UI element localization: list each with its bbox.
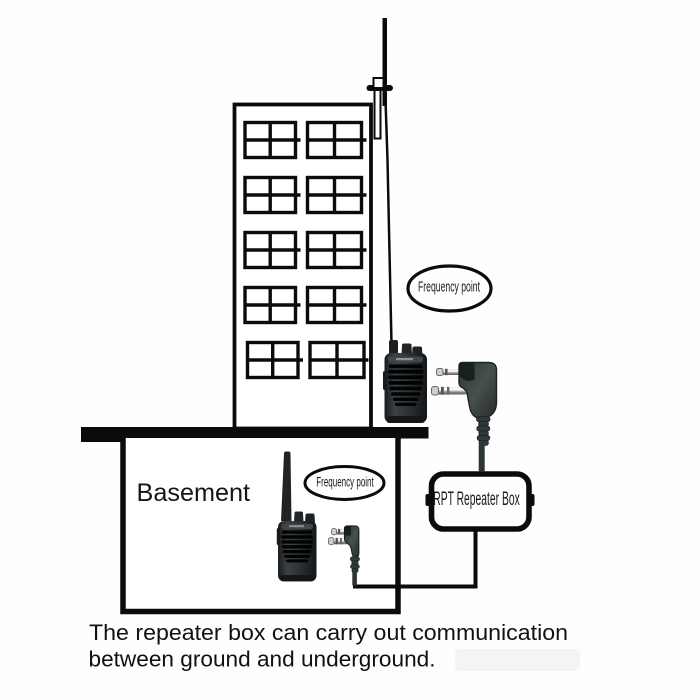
svg-text:RPT Repeater Box: RPT Repeater Box [433, 489, 520, 510]
svg-text:The repeater box can carry out: The repeater box can carry out communica… [89, 620, 568, 645]
svg-text:Frequency point: Frequency point [418, 280, 480, 296]
svg-text:Basement: Basement [137, 479, 251, 507]
svg-text:Frequency point: Frequency point [316, 475, 374, 490]
svg-text:between ground and underground: between ground and underground. [89, 647, 436, 672]
